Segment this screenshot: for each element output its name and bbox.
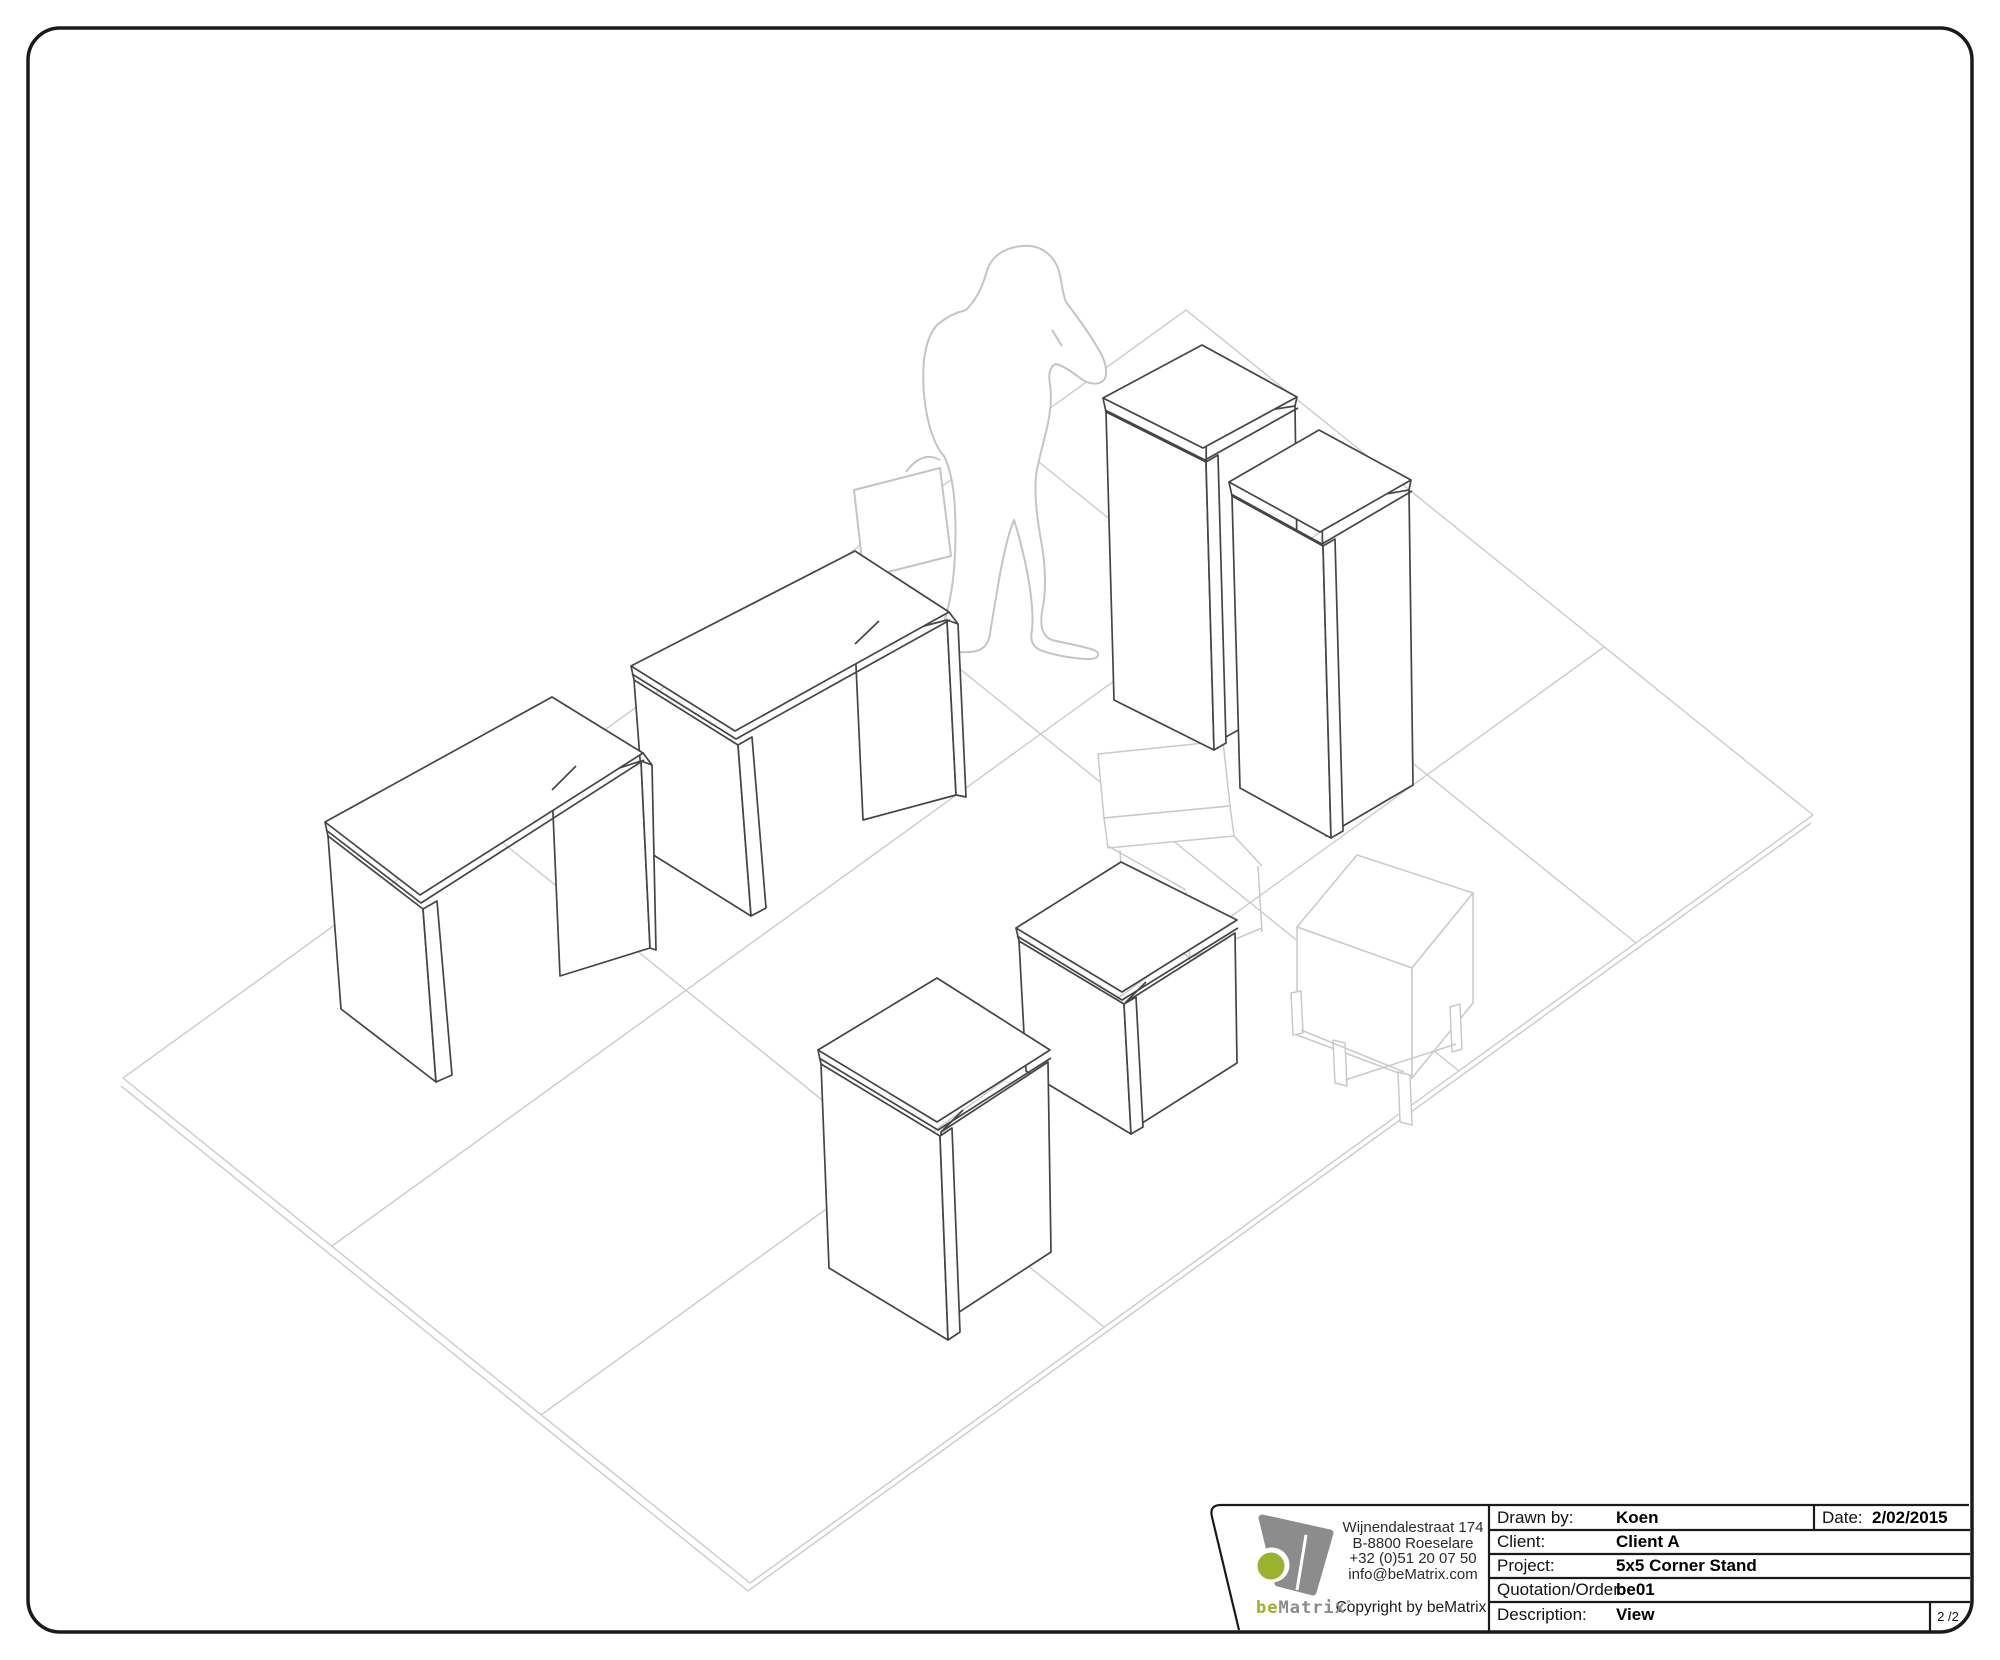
field-value-description: View <box>1616 1605 1654 1625</box>
pedestal-table-2 <box>1229 430 1413 838</box>
address-line: info@beMatrix.com <box>1318 1567 1508 1583</box>
field-label-drawn-by: Drawn by: <box>1497 1508 1574 1528</box>
bematrix-wordmark: beMatrix° <box>1256 1598 1352 1618</box>
logo-green-dot <box>1258 1553 1285 1580</box>
console-table-2 <box>631 551 966 916</box>
wordmark-matrix: Matrix <box>1278 1598 1345 1618</box>
field-value-project: 5x5 Corner Stand <box>1616 1556 1757 1576</box>
address-line: Wijnendalestraat 174 <box>1318 1520 1508 1536</box>
field-label-project: Project: <box>1497 1556 1555 1576</box>
date-value: 2/02/2015 <box>1872 1508 1948 1528</box>
side-table-sketch <box>1291 855 1473 1125</box>
field-value-quotation: be01 <box>1616 1580 1655 1600</box>
field-value-client: Client A <box>1616 1532 1680 1552</box>
date-label: Date: <box>1822 1508 1863 1528</box>
field-label-client: Client: <box>1497 1532 1545 1552</box>
wordmark-be: be <box>1256 1598 1278 1618</box>
field-label-description: Description: <box>1497 1605 1587 1625</box>
company-address: Wijnendalestraat 174 B-8800 Roeselare +3… <box>1318 1520 1508 1582</box>
drawing-sheet: Wijnendalestraat 174 B-8800 Roeselare +3… <box>0 0 2000 1660</box>
cube-stool-front <box>818 978 1051 1340</box>
page-indicator: 2 /2 <box>1928 1609 1968 1624</box>
address-line: B-8800 Roeselare <box>1318 1536 1508 1552</box>
field-label-quotation: Quotation/Order: <box>1497 1580 1624 1600</box>
drawing-canvas <box>0 0 2000 1660</box>
field-value-drawn-by: Koen <box>1616 1508 1659 1528</box>
registered-mark: ° <box>1346 1599 1352 1609</box>
address-line: +32 (0)51 20 07 50 <box>1318 1551 1508 1567</box>
console-table-1 <box>325 697 656 1082</box>
